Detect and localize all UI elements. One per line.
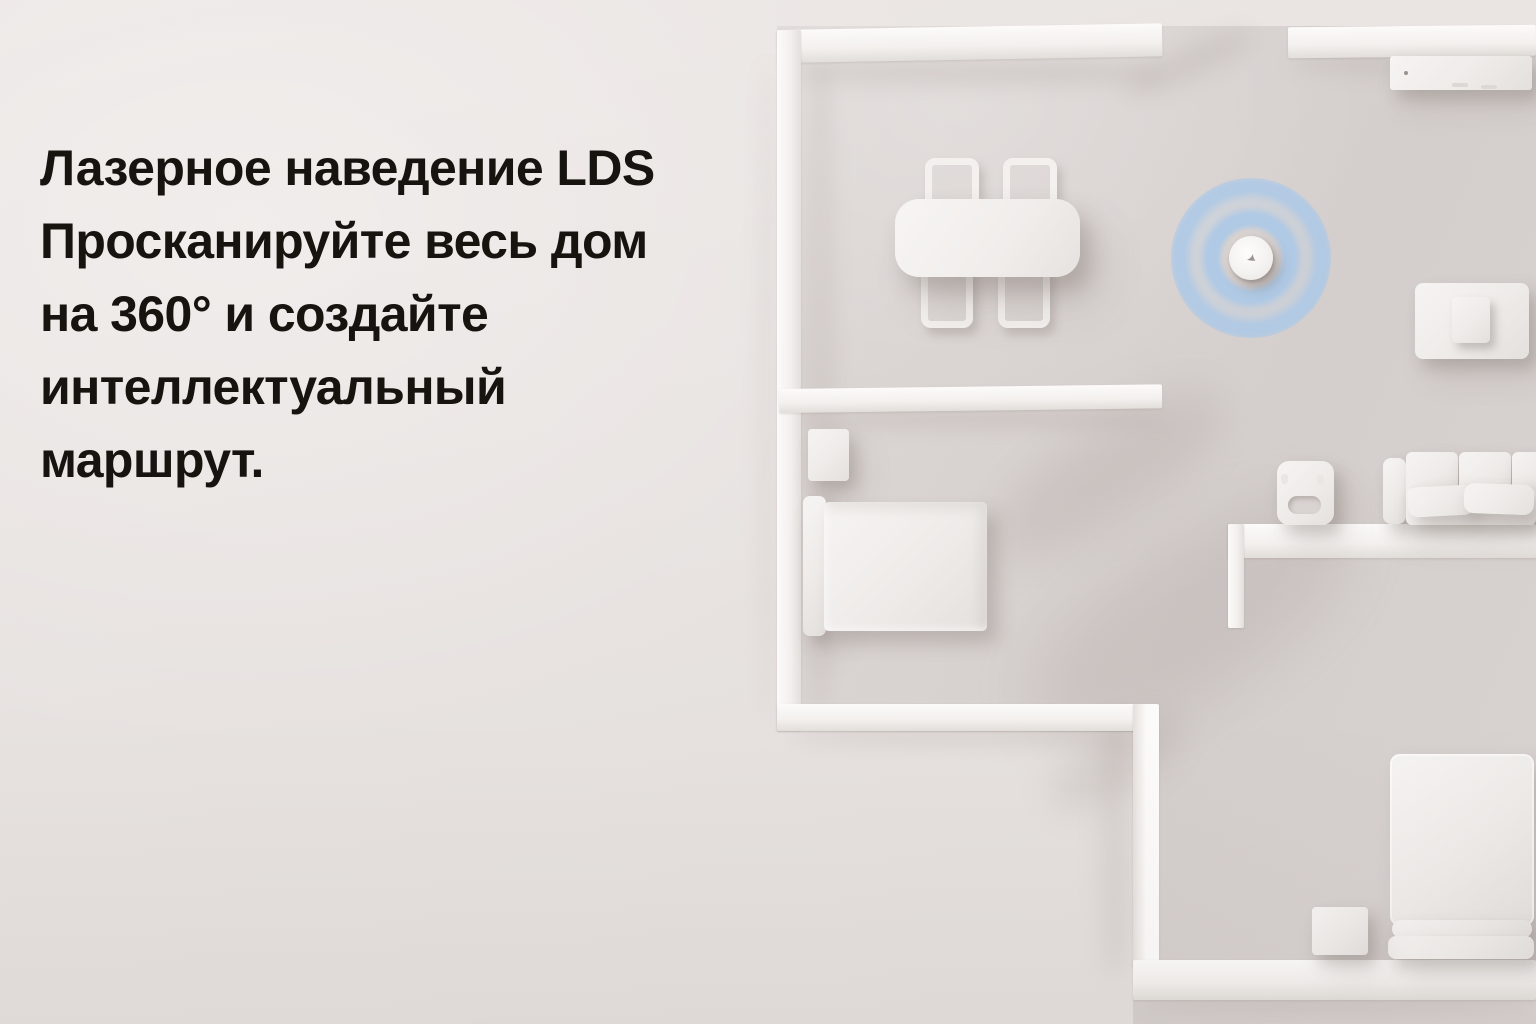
wall-lower-vertical: [1133, 704, 1159, 967]
bed-left-headboard: [803, 496, 826, 636]
console-notch-1: [1452, 83, 1468, 87]
headline-line-2: Просканируйте весь дом: [40, 205, 655, 278]
wall-left: [777, 30, 801, 730]
product-feature-banner: Лазерное наведение LDS Просканируйте вес…: [0, 0, 1536, 1024]
wall-bottom: [1133, 960, 1536, 1000]
console-button-dot: [1404, 71, 1408, 75]
bed-right-duvet: [1390, 754, 1534, 926]
armchair-handle-cutout: [1288, 496, 1321, 514]
wall-top-right: [1288, 25, 1536, 59]
armchair-hook-right: [1317, 475, 1324, 485]
sofa-pillow-2: [1463, 483, 1534, 515]
armchair: [1277, 461, 1334, 525]
sofa-armrest: [1383, 458, 1406, 524]
armchair-hook-left: [1281, 474, 1288, 484]
wall-top-left: [777, 23, 1163, 63]
nightstand-cube-right: [1312, 907, 1368, 955]
headline-line-1: Лазерное наведение LDS: [40, 132, 655, 205]
shadow-outside-left-wall: [757, 60, 777, 720]
bed-left-mattress: [824, 502, 987, 631]
side-table-object: [1452, 297, 1490, 343]
wall-middle-shelf: [779, 384, 1162, 413]
robot-vacuum: [1229, 236, 1273, 280]
wall-mid-right: [1228, 524, 1536, 558]
headline-line-5: маршрут.: [40, 424, 655, 497]
nightstand-left: [808, 429, 849, 481]
headline-line-4: интеллектуальный: [40, 351, 655, 424]
headline-line-3: на 360° и создайте: [40, 278, 655, 351]
shadow-under-top-wall: [792, 62, 1162, 84]
dining-table: [895, 199, 1080, 277]
headline: Лазерное наведение LDS Просканируйте вес…: [40, 132, 655, 497]
robot-logo-icon: [1243, 250, 1259, 266]
console-notch-2: [1481, 85, 1497, 89]
wall-mid-right-stub: [1228, 524, 1244, 628]
shadow-left-of-vertical-wall: [1098, 715, 1132, 975]
wall-lower-left: [777, 704, 1135, 731]
bed-right-pillow-2: [1388, 936, 1534, 959]
